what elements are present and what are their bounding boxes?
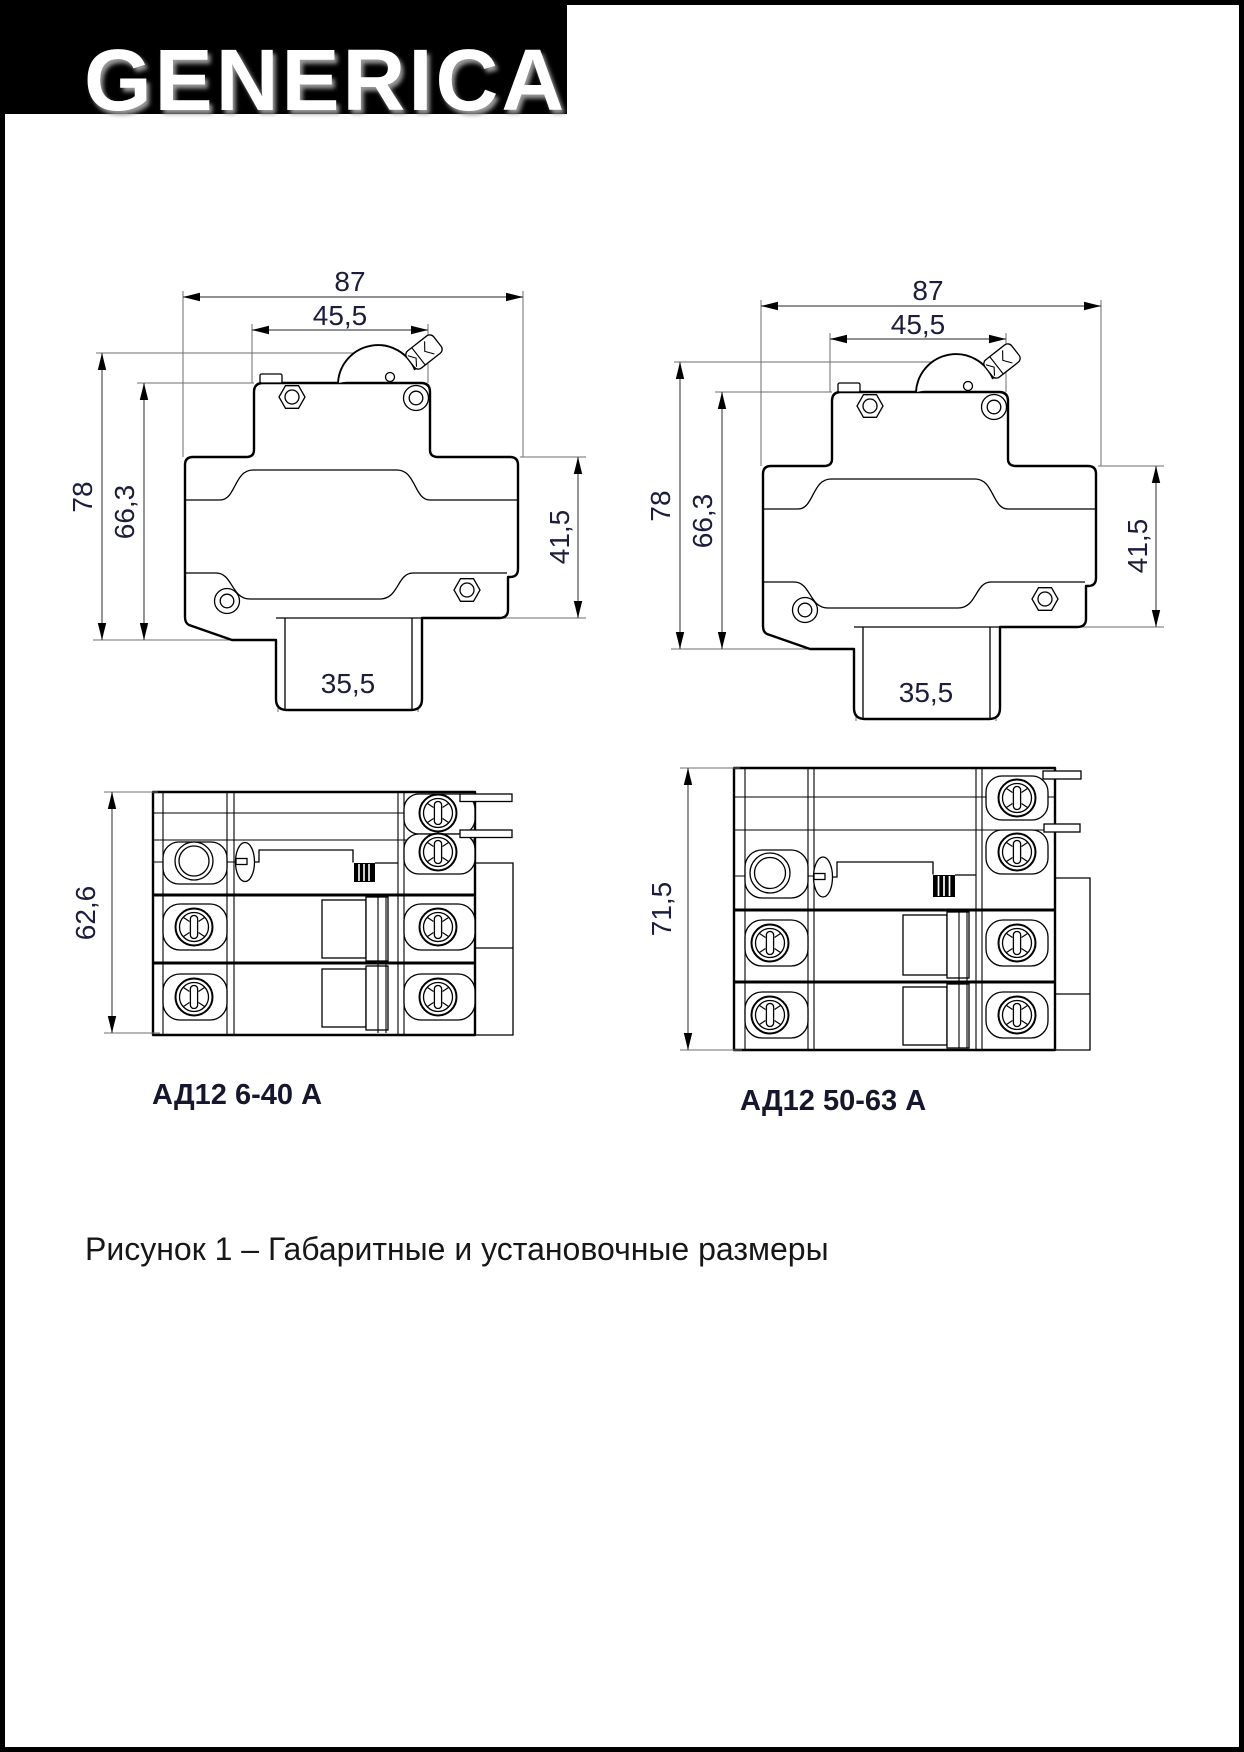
- datasheet-page: 87 45,5 78 66,3 41,5 35,5 87 45,5 78 66,…: [0, 0, 1244, 1752]
- toggle-knob-icon: [933, 875, 955, 897]
- dim-upper-width-right: 45,5: [891, 309, 946, 340]
- front-view-left: [153, 792, 513, 1035]
- dim-lower-height-right: 41,5: [1122, 519, 1153, 574]
- pin-icon: [460, 794, 512, 802]
- brand-header: GENERICA: [0, 0, 567, 114]
- dim-upper-width-left: 45,5: [313, 300, 368, 331]
- dim-din-width-right: 35,5: [899, 677, 954, 708]
- dim-overall-height-left: 78: [67, 481, 98, 512]
- brand-logo: GENERICA: [84, 37, 567, 124]
- figure-canvas: 87 45,5 78 66,3 41,5 35,5 87 45,5 78 66,…: [0, 0, 1244, 1752]
- product-label-left: АД12 6-40 А: [152, 1079, 322, 1112]
- figure-caption: Рисунок 1 – Габаритные и установочные ра…: [85, 1231, 829, 1268]
- dim-body-height-right: 66,3: [687, 494, 718, 549]
- side-view-left: [93, 291, 586, 712]
- toggle-knob-icon: [354, 863, 375, 882]
- pin-icon: [460, 830, 512, 838]
- dim-body-height-left: 66,3: [109, 485, 140, 540]
- dim-front-left-height: 62,6: [70, 886, 101, 941]
- dim-overall-height-right: 78: [645, 490, 676, 521]
- side-view-right: [671, 300, 1164, 721]
- dim-front-right-height: 71,5: [646, 882, 677, 937]
- dim-lower-height-left: 41,5: [544, 510, 575, 565]
- dim-overall-width-right: 87: [912, 275, 943, 306]
- pin-icon: [1044, 824, 1080, 832]
- product-label-right: АД12 50-63 А: [740, 1085, 926, 1118]
- front-view-right: [734, 768, 1090, 1050]
- pin-icon: [1043, 771, 1081, 779]
- dim-overall-width-left: 87: [334, 266, 365, 297]
- dim-din-width-left: 35,5: [321, 668, 376, 699]
